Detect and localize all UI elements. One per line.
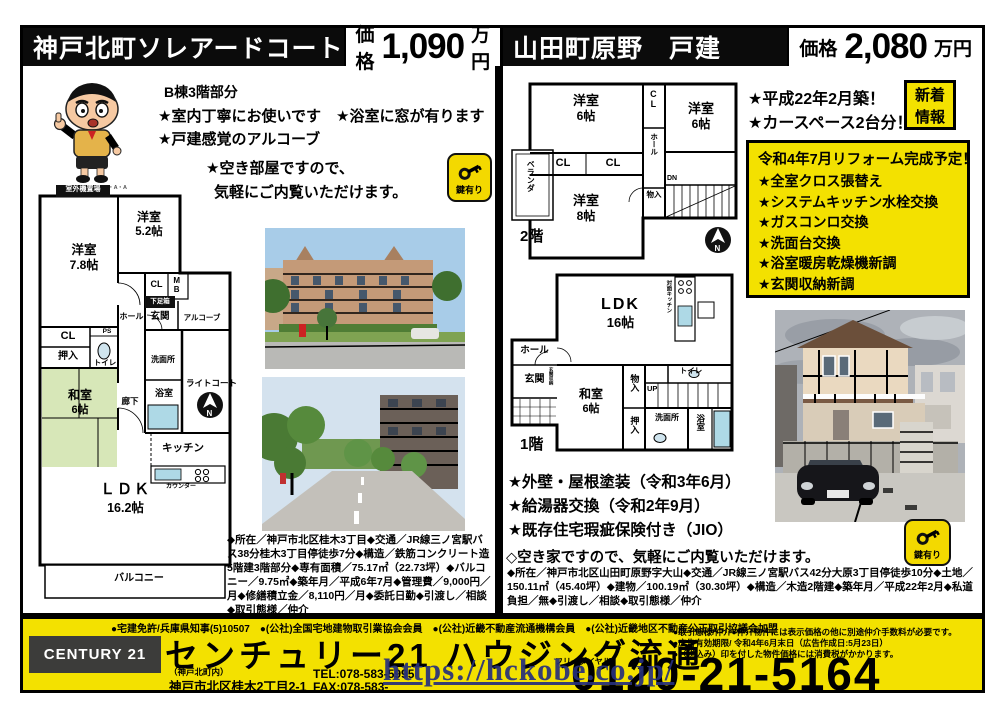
- right-feature-2: ★カースペース2台分！: [748, 109, 913, 133]
- left-floorplan: N 室外機置場 洋室 7.8帖 洋室 5.2帖 CL MB 下足箱 玄関 アルコ…: [38, 183, 240, 605]
- right-north-letter: N: [715, 244, 721, 253]
- century21-logo: CENTURY 21: [29, 636, 161, 673]
- right-floorplan-1f: LDK 16帖 対面キッチン ホール 玄関 玄関収納 和室 6帖 物入 押入 U…: [508, 268, 743, 468]
- right-price-box: 価格 2,080 万円: [787, 28, 982, 66]
- fp1-ldk-size: 16帖: [578, 316, 663, 331]
- fp-tatami-size: 6帖: [46, 404, 114, 417]
- fp1-kitchen-label: 対面キッチン: [665, 280, 671, 340]
- right-price-unit: 万円: [934, 34, 972, 61]
- fp2-cl2-label: CL: [596, 157, 630, 170]
- left-feature-2: ★戸建感覚のアルコーブ: [158, 128, 320, 149]
- right-key-badge-label: 鍵有り: [914, 548, 941, 561]
- new-listing-badge: 新着 情報: [904, 80, 956, 130]
- fp1-tatami-name: 和室: [560, 388, 622, 402]
- column-divider: [495, 25, 503, 616]
- fp2-hall-label: ホール: [649, 133, 658, 185]
- fp2-dn-label: DN: [667, 175, 677, 183]
- right-floorplan-2f: N 洋室 6帖 CL 洋室 6帖 CL CL ホール 洋室 8帖 DN 物入 ベ…: [508, 78, 743, 263]
- fp-room78-size: 7.8帖: [50, 259, 118, 273]
- fp-ldk-name: ＬＤＫ: [83, 481, 168, 498]
- left-feature-1: ★室内丁寧にお使いです ★浴室に窓が有ります: [158, 105, 484, 126]
- reform-title: 令和4年7月リフォーム完成予定！: [758, 148, 958, 169]
- watermark-url: https://hckobe.co.jp/: [383, 652, 674, 688]
- fp-ps-label: PS: [96, 328, 118, 335]
- right-price-label: 価格: [799, 34, 837, 61]
- maintenance-item: ★既存住宅瑕疵保険付き（JIO）: [508, 518, 733, 540]
- maintenance-item: ★給湯器交換（令和2年9月）: [508, 494, 710, 516]
- left-vacancy-2: 気軽にご内覧いただけます。: [214, 181, 407, 202]
- fp-hall-label: ホール: [118, 312, 145, 321]
- fp1-storage1-label: 物入: [629, 374, 639, 404]
- fp-cl-upper-label: CL: [145, 279, 168, 289]
- fp1-bathroom-label: 浴室: [695, 414, 705, 448]
- fp1-tatami-size: 6帖: [560, 403, 622, 416]
- reform-item: ★浴室暖房乾燥機新調: [758, 253, 958, 274]
- left-property-title: 神戸北町ソレアードコート: [23, 28, 344, 66]
- footer-address: 神戸市北区桂木2丁目2-1: [169, 676, 307, 695]
- fp-outdoor-unit-label: 室外機置場: [56, 186, 110, 194]
- left-price-unit: 万円: [471, 20, 490, 74]
- fp2-room6b-size: 6帖: [666, 118, 736, 132]
- fp-room78-name: 洋室: [50, 243, 118, 257]
- mascot-illustration: [44, 78, 140, 184]
- fp-washroom-label: 洗面所: [143, 355, 183, 364]
- fp1-ldk-name: LDK: [578, 296, 663, 314]
- fp1-entrance-storage-label: 玄関収納: [549, 367, 554, 397]
- left-vacancy-1: ★空き部屋ですので、: [206, 157, 354, 178]
- reform-item: ★全室クロス張替え: [758, 171, 958, 192]
- reform-info-box: 令和4年7月リフォーム完成予定！ ★全室クロス張替え ★システムキッチン水栓交換…: [746, 140, 970, 298]
- fp2-room6a-size: 6帖: [550, 110, 622, 124]
- left-key-available-badge: 鍵有り: [447, 153, 492, 202]
- fp2-room6b-name: 洋室: [666, 102, 736, 117]
- new-badge-line2: 情報: [907, 107, 953, 129]
- fp-tatami-name: 和室: [46, 389, 114, 403]
- right-property-title: 山田町原野 戸建: [503, 28, 787, 66]
- reform-item: ★洗面台交換: [758, 233, 958, 254]
- right-photo-house: [775, 310, 965, 522]
- footer-note: ●取引態様/仲介●仲介物件には表示価格の他に別途仲介手数料が必要です。: [673, 627, 1000, 638]
- key-icon: [915, 525, 941, 547]
- right-vacancy-note: ◇空き家ですので、気軽にご内覧いただけます。: [506, 546, 819, 567]
- left-price-box: 価格 1,090 万円: [344, 28, 501, 66]
- fp-bathroom-label: 浴室: [145, 388, 183, 398]
- right-feature-1: ★平成22年2月築！: [748, 85, 885, 109]
- fp2-storage-label: 物入: [642, 191, 666, 200]
- fp-balcony-label: バルコニー: [94, 573, 184, 585]
- left-property-details: ◆所在／神戸市北区桂木3丁目◆交通／JR線三ノ宮駅バス38分桂木3丁目停徒歩7分…: [227, 533, 493, 617]
- left-price-label: 価格: [356, 20, 375, 74]
- new-badge-line1: 新着: [907, 85, 953, 107]
- fp2-cl1-label: CL: [546, 157, 580, 170]
- fp-toilet-label: トイレ: [91, 359, 119, 368]
- fp-cl-lower-label: CL: [46, 330, 90, 343]
- fp-alcove-label: アルコーブ: [178, 314, 226, 323]
- fp1-hall-label: ホール: [512, 346, 557, 357]
- maintenance-item: ★外壁・屋根塗装（令和3年6月）: [508, 470, 741, 492]
- fp-kitchen-label: キッチン: [156, 442, 210, 454]
- fp1-toilet-label: トイレ: [671, 367, 711, 376]
- footer-fax: FAX:078-583-: [313, 680, 388, 694]
- fp-room52-name: 洋室: [120, 211, 178, 225]
- fp-corridor-label: 廊下: [117, 397, 143, 407]
- key-icon: [457, 160, 483, 182]
- fp1-floor-label: 1階: [520, 436, 543, 453]
- right-property-header: 山田町原野 戸建 価格 2,080 万円: [503, 28, 982, 66]
- fp-lightcourt-label: ライトコート: [183, 379, 240, 389]
- fp-room52-size: 5.2帖: [120, 226, 178, 239]
- left-property-header: 神戸北町ソレアードコート 価格 1,090 万円: [23, 28, 493, 66]
- left-key-badge-label: 鍵有り: [456, 183, 483, 196]
- left-price-value: 1,090: [382, 27, 465, 67]
- right-key-available-badge: 鍵有り: [904, 519, 951, 566]
- fp-entrance-label: 玄関: [145, 312, 175, 323]
- fp2-room8-name: 洋室: [550, 194, 622, 209]
- fp1-storage2-label: 押入: [629, 416, 639, 446]
- left-photo-building: [265, 228, 465, 369]
- flyer-page: { "watermark": "https://hckobe.co.jp/", …: [0, 0, 1000, 708]
- fp1-up-label: UP: [647, 385, 657, 394]
- fp2-veranda-label: ベランダ: [526, 160, 535, 216]
- fp2-room6a-name: 洋室: [550, 94, 622, 109]
- fp-mb-label: MB: [172, 276, 181, 298]
- fp-closet-label: 押入: [46, 351, 90, 363]
- right-property-details: ◆所在／神戸市北区山田町原野字大山◆交通／JR線三ノ宮駅バス42分大原3丁目停徒…: [507, 566, 981, 608]
- fp2-floor-label: 2階: [520, 228, 543, 245]
- left-photo-street: [262, 377, 465, 531]
- fp-ldk-size: 16.2帖: [83, 501, 168, 515]
- right-price-value: 2,080: [844, 27, 927, 67]
- reform-item: ★玄関収納新調: [758, 274, 958, 295]
- left-north-letter: N: [207, 409, 213, 418]
- fp2-room8-size: 8帖: [550, 210, 622, 224]
- fp2-cl-vert-label: CL: [648, 89, 658, 125]
- left-unit-note: B棟3階部分: [164, 84, 238, 100]
- fp-shoebox-label: 下足箱: [145, 298, 175, 305]
- fp1-washroom-label: 洗面所: [646, 413, 688, 422]
- reform-item: ★ガスコンロ交換: [758, 212, 958, 233]
- reform-item: ★システムキッチン水栓交換: [758, 192, 958, 213]
